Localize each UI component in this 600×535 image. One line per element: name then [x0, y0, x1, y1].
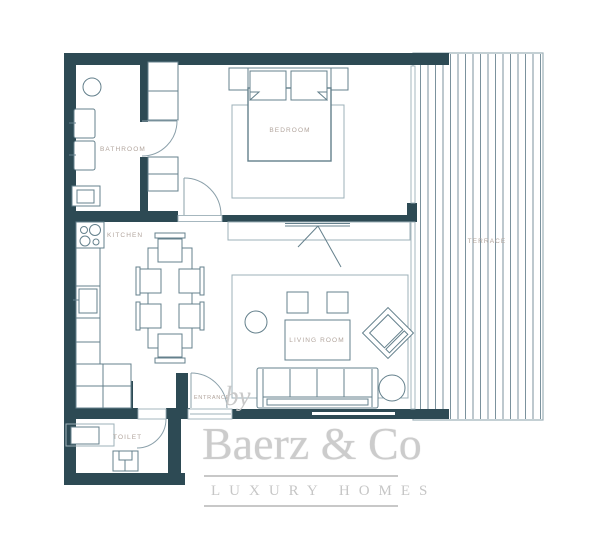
sofa-base — [267, 399, 368, 405]
pouf-1 — [287, 292, 308, 313]
wall-mid-right — [222, 215, 411, 222]
wall-corner-block — [407, 203, 417, 222]
side-table-round-2 — [379, 375, 405, 401]
chair-top-back — [155, 233, 185, 238]
side-table-round — [245, 311, 267, 333]
wall-toilet-top-seg — [166, 408, 190, 419]
dining-table — [148, 248, 192, 348]
bathroom-wc-seat — [77, 190, 94, 203]
bathroom-stool — [83, 78, 101, 96]
label-bathroom: BATHROOM — [100, 146, 146, 153]
toilet-door-opening — [138, 409, 166, 419]
wall-top — [65, 53, 449, 65]
chair-left1-back — [136, 267, 140, 295]
burner-4 — [93, 239, 99, 245]
chair-right2-back — [200, 302, 204, 330]
bedroom-window — [411, 66, 415, 203]
sofa — [257, 368, 378, 408]
sliding-door-line — [312, 412, 395, 415]
armchair — [363, 308, 414, 359]
burner-1 — [81, 227, 88, 234]
burner-3 — [80, 236, 90, 246]
chair-left1 — [140, 269, 161, 293]
hall-closets — [148, 62, 178, 191]
toilet-fixtures — [66, 424, 138, 471]
burner-2 — [90, 225, 101, 236]
living-room-furniture — [228, 222, 413, 408]
chair-bottom — [158, 334, 182, 357]
label-toilet: TOILET — [113, 434, 142, 441]
chair-right2 — [179, 304, 200, 328]
kitchen-fixtures — [73, 222, 131, 408]
dining-set — [136, 233, 204, 363]
toilet-wc-tank — [119, 451, 132, 460]
wall-toilet-bottom — [64, 473, 185, 485]
stove — [76, 222, 104, 248]
watermark-by: by — [225, 381, 250, 412]
wall-bathroom-right-bottom — [140, 157, 148, 212]
bedroom-door-arc — [184, 178, 221, 215]
wall-bathroom-right-top — [140, 65, 148, 122]
chair-left2 — [140, 304, 161, 328]
label-bedroom: BEDROOM — [269, 127, 310, 134]
label-living-room: LIVING ROOM — [289, 337, 344, 344]
wall-mid-left — [64, 211, 178, 222]
terrace-outline — [413, 53, 543, 420]
chair-right1-back — [200, 267, 204, 295]
wall-kitchen-bottom — [64, 408, 138, 419]
floor-plan-page: BATHROOM BEDROOM KITCHEN TERRACE LIVING … — [0, 0, 600, 535]
media-console — [228, 222, 410, 240]
entrance-door-arc — [191, 373, 227, 408]
kitchen-sink — [79, 289, 97, 313]
living-room-window — [411, 222, 415, 409]
pouf-2 — [327, 292, 348, 313]
watermark-rule-bottom — [204, 505, 398, 507]
toilet-sink — [71, 427, 99, 444]
bathroom-door-arc — [142, 121, 177, 156]
watermark-tagline: LUXURY HOMES — [202, 483, 400, 500]
headboard-shelf — [229, 68, 348, 90]
bathroom-sink-2 — [74, 141, 95, 170]
label-terrace: TERRACE — [468, 238, 507, 245]
watermark-brand: Baerz & Co — [202, 418, 400, 471]
watermark-block: Baerz & Co LUXURY HOMES — [202, 418, 400, 513]
chair-left2-back — [136, 302, 140, 330]
chair-right1 — [179, 269, 200, 293]
label-kitchen: KITCHEN — [107, 232, 143, 239]
chair-top — [158, 239, 182, 262]
watermark-rule-top — [204, 475, 398, 477]
bathroom-sink-1 — [74, 109, 95, 138]
bedroom-door-opening — [178, 216, 222, 222]
wall-toilet-right — [168, 408, 181, 485]
terrace-area — [413, 53, 543, 420]
chair-bottom-back — [155, 358, 185, 363]
